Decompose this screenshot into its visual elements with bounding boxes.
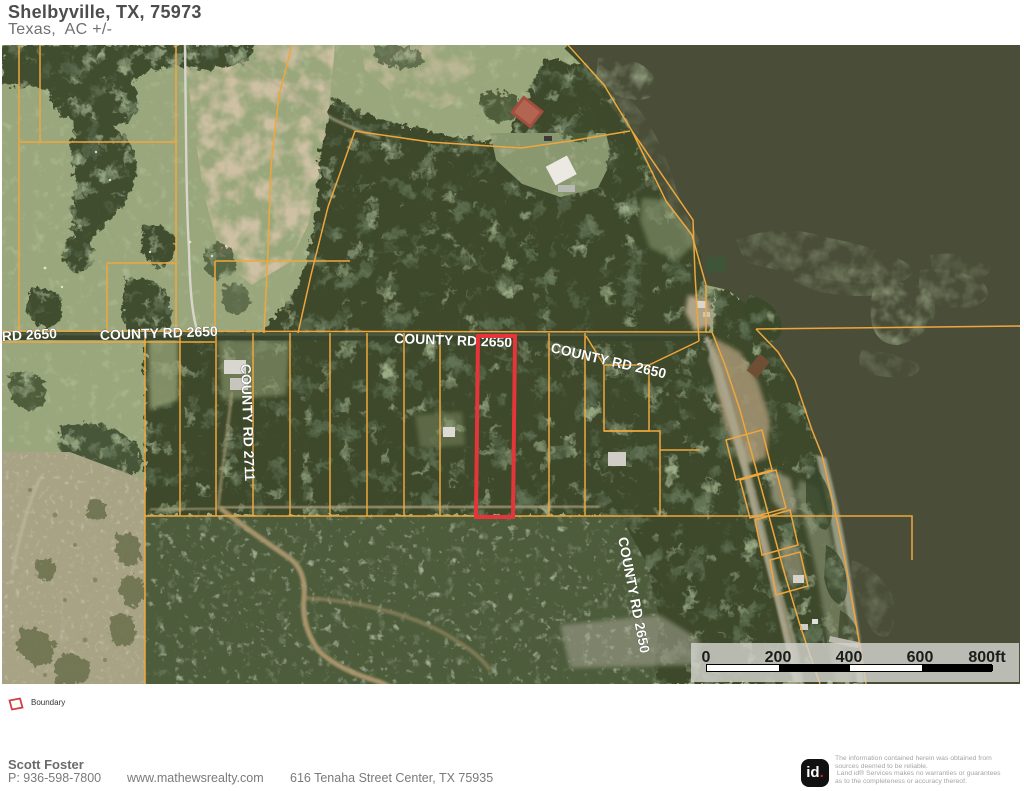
- svg-text:RD 2650: RD 2650: [2, 325, 58, 344]
